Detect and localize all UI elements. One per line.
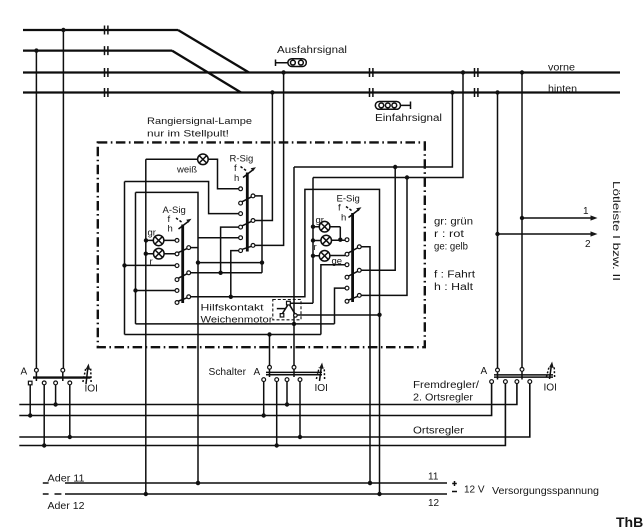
svg-text:Ortsregler: Ortsregler [413, 426, 465, 437]
svg-text:Einfahrsignal: Einfahrsignal [375, 113, 442, 124]
svg-text:ge: gelb: ge: gelb [434, 242, 468, 253]
svg-text:ge: ge [332, 256, 343, 267]
svg-text:A: A [21, 367, 28, 378]
svg-text:Schalter: Schalter [209, 367, 247, 378]
svg-text:2. Ortsregler: 2. Ortsregler [413, 393, 474, 404]
svg-text:Lötleiste I bzw. II: Lötleiste I bzw. II [610, 181, 621, 281]
svg-text:h : Halt: h : Halt [434, 282, 473, 293]
svg-text:1: 1 [583, 206, 589, 217]
svg-text:A-Sig: A-Sig [163, 205, 186, 216]
svg-text:A: A [481, 366, 488, 377]
svg-text:IOI: IOI [315, 383, 329, 394]
svg-text:Rangiersignal-Lampe: Rangiersignal-Lampe [147, 116, 252, 127]
svg-text:A: A [254, 367, 261, 378]
svg-text:2: 2 [585, 239, 591, 250]
svg-text:h: h [341, 213, 346, 224]
svg-text:r: r [314, 242, 317, 253]
svg-text:f : Fahrt: f : Fahrt [434, 270, 475, 281]
svg-text:nur im Stellpult!: nur im Stellpult! [147, 129, 229, 140]
svg-text:11: 11 [428, 472, 439, 483]
svg-text:Weichenmotor: Weichenmotor [201, 315, 273, 326]
svg-text:hinten: hinten [548, 84, 577, 95]
svg-text:12 V: 12 V [464, 485, 485, 496]
svg-text:ThB: ThB [616, 514, 643, 530]
svg-text:Versorgungsspannung: Versorgungsspannung [492, 486, 599, 497]
svg-text:vorne: vorne [548, 63, 575, 74]
svg-text:r : rot: r : rot [434, 229, 464, 240]
svg-text:h: h [168, 224, 173, 235]
svg-text:12: 12 [428, 498, 440, 509]
svg-text:IOI: IOI [544, 383, 558, 394]
svg-text:IOI: IOI [85, 384, 99, 395]
svg-text:Hilfskontakt: Hilfskontakt [201, 303, 264, 314]
svg-text:Ader 12: Ader 12 [48, 501, 85, 512]
svg-text:gr: grün: gr: grün [434, 217, 473, 228]
svg-text:h: h [234, 173, 239, 184]
svg-text:Ausfahrsignal: Ausfahrsignal [277, 45, 347, 56]
svg-text:Fremdregler/: Fremdregler/ [413, 380, 479, 391]
svg-text:weiß: weiß [176, 165, 197, 176]
